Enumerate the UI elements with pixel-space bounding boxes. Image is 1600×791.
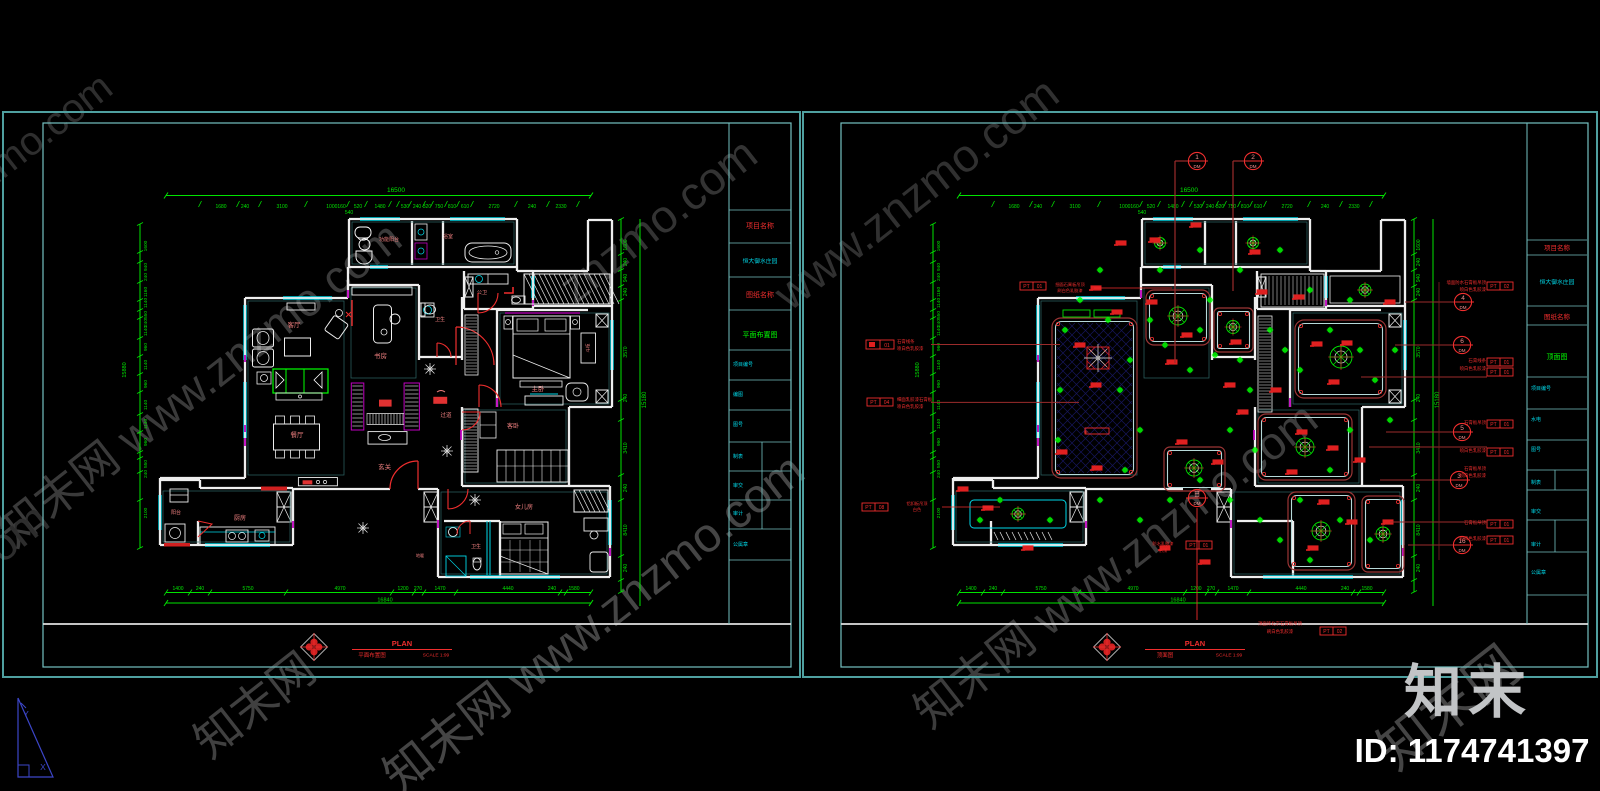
svg-text:SCALE 1:99: SCALE 1:99 <box>423 653 450 659</box>
svg-text:550: 550 <box>143 460 149 468</box>
svg-text:530: 530 <box>401 204 410 210</box>
svg-text:550: 550 <box>936 460 942 468</box>
svg-text:公属章: 公属章 <box>733 541 748 548</box>
svg-text:940: 940 <box>936 263 942 271</box>
svg-text:16840: 16840 <box>1170 598 1185 604</box>
svg-text:PT: PT <box>1189 543 1195 549</box>
svg-text:1160: 1160 <box>936 287 942 298</box>
svg-text:08: 08 <box>879 505 885 511</box>
svg-text:DM: DM <box>1194 164 1201 169</box>
svg-text:2720: 2720 <box>488 204 499 210</box>
svg-text:240: 240 <box>936 470 942 478</box>
svg-text:240: 240 <box>196 586 205 592</box>
svg-text:2: 2 <box>1251 154 1255 161</box>
svg-text:PLAN: PLAN <box>392 639 412 648</box>
svg-text:1140: 1140 <box>936 400 942 411</box>
svg-text:刷白色乳胶漆: 刷白色乳胶漆 <box>1267 628 1294 635</box>
svg-text:厨房: 厨房 <box>234 514 246 522</box>
svg-text:水电: 水电 <box>1531 416 1541 423</box>
svg-text:石膏线条: 石膏线条 <box>1468 357 1486 364</box>
svg-text:240: 240 <box>241 204 250 210</box>
svg-text:1480: 1480 <box>1167 204 1178 210</box>
svg-text:320: 320 <box>1216 204 1225 210</box>
svg-text:810: 810 <box>448 204 457 210</box>
svg-text:4: 4 <box>1461 295 1465 302</box>
svg-text:斗柜: 斗柜 <box>585 343 592 352</box>
svg-text:卫生: 卫生 <box>471 543 481 550</box>
svg-text:喷白色乳胶漆: 喷白色乳胶漆 <box>1460 447 1487 454</box>
svg-text:顶面图: 顶面图 <box>1157 651 1174 659</box>
svg-text:750: 750 <box>1228 204 1237 210</box>
svg-text:审交: 审交 <box>1531 508 1541 515</box>
svg-text:书房: 书房 <box>374 351 387 360</box>
svg-text:1600: 1600 <box>623 239 629 250</box>
svg-text:DM: DM <box>1456 483 1463 488</box>
svg-text:防水乳胶漆: 防水乳胶漆 <box>1153 540 1174 547</box>
svg-text:240: 240 <box>623 288 629 297</box>
svg-text:240: 240 <box>143 273 149 281</box>
svg-text:喷白色乳胶漆: 喷白色乳胶漆 <box>897 345 924 352</box>
svg-text:1000160: 1000160 <box>1119 204 1139 210</box>
svg-text:石膏板吊顶: 石膏板吊顶 <box>1464 419 1487 426</box>
svg-text:01: 01 <box>1504 360 1510 366</box>
svg-text:2720: 2720 <box>1281 204 1292 210</box>
svg-text:DM: DM <box>1459 435 1466 440</box>
svg-text:240: 240 <box>1321 204 1330 210</box>
svg-text:X: X <box>40 762 46 772</box>
svg-text:4440: 4440 <box>502 586 513 592</box>
svg-text:240: 240 <box>528 204 537 210</box>
svg-text:1: 1 <box>1195 154 1199 161</box>
svg-text:1400: 1400 <box>965 586 976 592</box>
svg-text:01: 01 <box>1037 284 1043 290</box>
svg-text:餐厅: 餐厅 <box>291 430 305 439</box>
svg-text:白色: 白色 <box>913 506 922 513</box>
svg-text:DM: DM <box>1460 305 1467 310</box>
svg-text:960: 960 <box>143 380 149 388</box>
svg-text:公属章: 公属章 <box>1531 569 1546 576</box>
svg-text:Y: Y <box>23 709 29 719</box>
svg-text:960: 960 <box>143 438 149 446</box>
svg-text:阳台: 阳台 <box>171 509 181 516</box>
svg-text:PT: PT <box>870 400 876 406</box>
svg-text:细面乳胶漆石膏板: 细面乳胶漆石膏板 <box>897 396 933 403</box>
svg-text:3570: 3570 <box>1416 346 1422 357</box>
svg-text:04: 04 <box>884 400 890 406</box>
svg-text:恒大御水庄园: 恒大御水庄园 <box>743 257 778 265</box>
svg-text:15180: 15180 <box>642 391 648 408</box>
svg-text:240: 240 <box>1416 394 1422 403</box>
svg-text:顶面饰北京石膏板吊顶: 顶面饰北京石膏板吊顶 <box>1258 620 1303 627</box>
svg-text:240: 240 <box>936 319 942 327</box>
svg-text:4970: 4970 <box>1127 586 1138 592</box>
svg-text:01: 01 <box>1504 538 1510 544</box>
svg-text:编图: 编图 <box>733 391 743 398</box>
svg-text:1140: 1140 <box>143 360 149 371</box>
svg-text:1140: 1140 <box>936 360 942 371</box>
svg-text:知末: 知末 <box>1404 660 1532 725</box>
svg-text:240: 240 <box>623 394 629 403</box>
svg-text:520: 520 <box>1147 204 1156 210</box>
svg-text:PT: PT <box>1490 284 1496 290</box>
svg-text:PT: PT <box>865 505 871 511</box>
svg-text:图纸名称: 图纸名称 <box>1544 312 1571 321</box>
svg-text:1470: 1470 <box>1227 586 1238 592</box>
svg-text:PT: PT <box>1490 422 1496 428</box>
svg-text:550: 550 <box>936 311 942 319</box>
svg-text:15880: 15880 <box>122 362 128 377</box>
svg-text:卫生: 卫生 <box>435 316 445 323</box>
svg-text:图号: 图号 <box>733 422 743 428</box>
svg-text:1160: 1160 <box>143 287 149 298</box>
svg-text:01: 01 <box>1504 370 1510 376</box>
svg-text:240: 240 <box>623 564 629 573</box>
svg-text:940: 940 <box>1416 274 1422 283</box>
svg-text:8410: 8410 <box>623 524 629 535</box>
svg-text:细面石膏板吊顶: 细面石膏板吊顶 <box>1055 281 1085 288</box>
svg-text:4970: 4970 <box>334 586 345 592</box>
svg-text:940: 940 <box>143 263 149 271</box>
svg-text:530: 530 <box>1194 204 1203 210</box>
svg-text:240: 240 <box>1034 204 1043 210</box>
svg-text:PT: PT <box>1490 450 1496 456</box>
svg-text:3100: 3100 <box>276 204 287 210</box>
svg-text:审交: 审交 <box>733 482 743 489</box>
svg-text:1200: 1200 <box>1190 586 1201 592</box>
svg-text:2330: 2330 <box>1348 204 1359 210</box>
svg-text:女儿房: 女儿房 <box>515 503 533 511</box>
svg-text:制表: 制表 <box>1531 479 1541 486</box>
svg-text:16500: 16500 <box>387 187 405 194</box>
svg-text:01: 01 <box>1504 522 1510 528</box>
svg-text:DM: DM <box>1250 164 1257 169</box>
svg-text:客卧: 客卧 <box>507 422 519 430</box>
svg-text:4440: 4440 <box>1295 586 1306 592</box>
svg-text:2330: 2330 <box>555 204 566 210</box>
svg-text:DM: DM <box>1194 501 1201 506</box>
svg-text:喷白色乳胶漆: 喷白色乳胶漆 <box>1460 365 1487 372</box>
svg-text:1140: 1140 <box>936 419 942 430</box>
svg-text:940: 940 <box>623 274 629 283</box>
svg-text:3410: 3410 <box>623 442 629 453</box>
svg-text:1470: 1470 <box>434 586 445 592</box>
svg-text:PT: PT <box>1323 629 1329 635</box>
svg-text:01: 01 <box>1203 543 1209 549</box>
svg-text:1680: 1680 <box>215 204 226 210</box>
svg-text:1580: 1580 <box>568 586 579 592</box>
svg-text:01: 01 <box>1504 422 1510 428</box>
svg-text:刷白色乳胶漆: 刷白色乳胶漆 <box>1057 287 1082 294</box>
svg-text:2100: 2100 <box>936 507 942 518</box>
svg-text:1600: 1600 <box>936 240 942 251</box>
svg-text:1140: 1140 <box>143 298 149 309</box>
svg-text:02: 02 <box>1504 284 1510 290</box>
svg-text:喷白色乳胶漆: 喷白色乳胶漆 <box>1460 472 1487 479</box>
svg-text:1200: 1200 <box>397 586 408 592</box>
svg-text:喷白色乳胶漆: 喷白色乳胶漆 <box>1460 535 1487 542</box>
svg-text:PT: PT <box>1490 370 1496 376</box>
svg-text:960: 960 <box>936 343 942 351</box>
svg-text:240: 240 <box>1416 258 1422 267</box>
svg-text:02: 02 <box>1337 629 1343 635</box>
svg-text:610: 610 <box>1254 204 1263 210</box>
svg-text:240: 240 <box>143 319 149 327</box>
svg-text:3100: 3100 <box>1069 204 1080 210</box>
svg-text:顶面图: 顶面图 <box>1547 353 1568 361</box>
svg-text:浴室: 浴室 <box>443 233 453 240</box>
svg-text:520: 520 <box>354 204 363 210</box>
svg-text:540: 540 <box>1138 210 1147 216</box>
svg-text:图号: 图号 <box>1531 447 1541 453</box>
svg-text:PT: PT <box>1023 284 1029 290</box>
svg-text:550: 550 <box>143 311 149 319</box>
svg-text:制表: 制表 <box>733 453 743 460</box>
svg-text:960: 960 <box>936 380 942 388</box>
svg-text:玄关: 玄关 <box>378 462 392 471</box>
svg-text:1680: 1680 <box>1008 204 1019 210</box>
svg-text:平面布置图: 平面布置图 <box>358 651 386 659</box>
svg-text:240: 240 <box>623 258 629 267</box>
svg-text:540: 540 <box>345 210 354 216</box>
svg-text:项目名称: 项目名称 <box>1544 243 1571 252</box>
svg-text:810: 810 <box>1241 204 1250 210</box>
svg-text:1140: 1140 <box>936 298 942 309</box>
svg-text:日: 日 <box>1194 490 1201 498</box>
svg-text:16840: 16840 <box>377 598 392 604</box>
svg-text:1600: 1600 <box>143 240 149 251</box>
svg-text:240: 240 <box>623 484 629 493</box>
svg-text:1600: 1600 <box>1416 239 1422 250</box>
svg-text:5750: 5750 <box>242 586 253 592</box>
svg-text:6: 6 <box>1460 338 1464 345</box>
svg-text:240: 240 <box>413 204 422 210</box>
svg-text:ID: 1174741397: ID: 1174741397 <box>1355 732 1590 769</box>
svg-text:图纸名称: 图纸名称 <box>746 290 774 299</box>
svg-text:01: 01 <box>1504 450 1510 456</box>
svg-text:1140: 1140 <box>143 400 149 411</box>
svg-text:15880: 15880 <box>915 362 921 377</box>
svg-text:5750: 5750 <box>1035 586 1046 592</box>
svg-text:960: 960 <box>143 343 149 351</box>
svg-text:240: 240 <box>143 470 149 478</box>
svg-text:项目编号: 项目编号 <box>1531 385 1551 392</box>
svg-text:石膏线条: 石膏线条 <box>897 338 915 345</box>
svg-text:750: 750 <box>435 204 444 210</box>
svg-text:墙面防水石膏板吊顶: 墙面防水石膏板吊顶 <box>1446 279 1486 286</box>
svg-text:240: 240 <box>989 586 998 592</box>
svg-text:客厅: 客厅 <box>288 320 302 329</box>
svg-text:01: 01 <box>884 343 890 349</box>
svg-text:960: 960 <box>936 438 942 446</box>
svg-text:PLAN: PLAN <box>1185 639 1205 648</box>
svg-text:240: 240 <box>1341 586 1350 592</box>
svg-text:240: 240 <box>1416 564 1422 573</box>
svg-text:恒大御水庄园: 恒大御水庄园 <box>1540 278 1575 286</box>
svg-text:项目编号: 项目编号 <box>733 361 753 368</box>
svg-text:610: 610 <box>461 204 470 210</box>
svg-text:PT: PT <box>1490 360 1496 366</box>
svg-text:1140: 1140 <box>936 326 942 337</box>
svg-text:DM: DM <box>1459 548 1466 553</box>
svg-text:1580: 1580 <box>1361 586 1372 592</box>
svg-text:240: 240 <box>1416 288 1422 297</box>
svg-text:审计: 审计 <box>733 510 743 517</box>
svg-text:15180: 15180 <box>1435 391 1441 408</box>
svg-text:1140: 1140 <box>143 326 149 337</box>
svg-text:240: 240 <box>1206 204 1215 210</box>
svg-text:铝扣板吊顶: 铝扣板吊顶 <box>907 500 929 507</box>
svg-text:DM: DM <box>1459 348 1466 353</box>
svg-text:平面布置图: 平面布置图 <box>743 330 778 339</box>
svg-text:功能阳台: 功能阳台 <box>379 236 399 243</box>
svg-text:PT: PT <box>1490 522 1496 528</box>
svg-text:240: 240 <box>548 586 557 592</box>
svg-text:240: 240 <box>936 273 942 281</box>
svg-text:240: 240 <box>1416 484 1422 493</box>
svg-text:1140: 1140 <box>143 419 149 430</box>
svg-text:主卧: 主卧 <box>532 384 546 393</box>
svg-text:喷白色乳胶漆: 喷白色乳胶漆 <box>1460 286 1487 293</box>
svg-text:8410: 8410 <box>1416 524 1422 535</box>
svg-text:石膏板吊顶: 石膏板吊顶 <box>1464 465 1487 472</box>
svg-text:项目名称: 项目名称 <box>746 221 774 230</box>
svg-text:SCALE 1:99: SCALE 1:99 <box>1216 653 1243 659</box>
svg-text:1400: 1400 <box>172 586 183 592</box>
svg-text:16500: 16500 <box>1180 187 1198 194</box>
svg-text:2100: 2100 <box>143 507 149 518</box>
svg-text:5: 5 <box>1460 425 1464 432</box>
svg-text:过道: 过道 <box>440 411 452 419</box>
svg-text:审计: 审计 <box>1531 541 1541 548</box>
svg-text:PT: PT <box>1490 538 1496 544</box>
svg-text:地暖: 地暖 <box>416 552 424 558</box>
svg-text:1000160: 1000160 <box>326 204 346 210</box>
svg-text:喷白色乳胶漆: 喷白色乳胶漆 <box>897 403 924 410</box>
svg-text:1480: 1480 <box>374 204 385 210</box>
svg-text:320: 320 <box>423 204 432 210</box>
svg-text:3570: 3570 <box>623 346 629 357</box>
svg-text:3410: 3410 <box>1416 442 1422 453</box>
